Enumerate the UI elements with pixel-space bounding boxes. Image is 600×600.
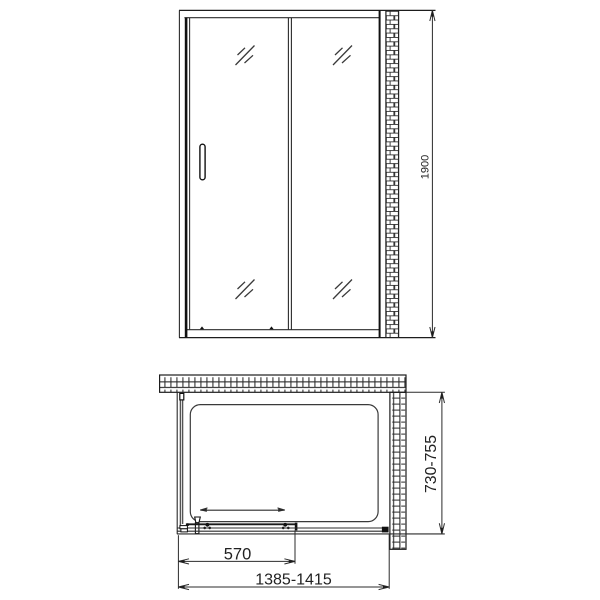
svg-text:570: 570 xyxy=(224,545,252,563)
svg-text:730-755: 730-755 xyxy=(423,435,440,493)
svg-text:1385-1415: 1385-1415 xyxy=(255,572,332,589)
svg-text:1900: 1900 xyxy=(420,155,432,179)
